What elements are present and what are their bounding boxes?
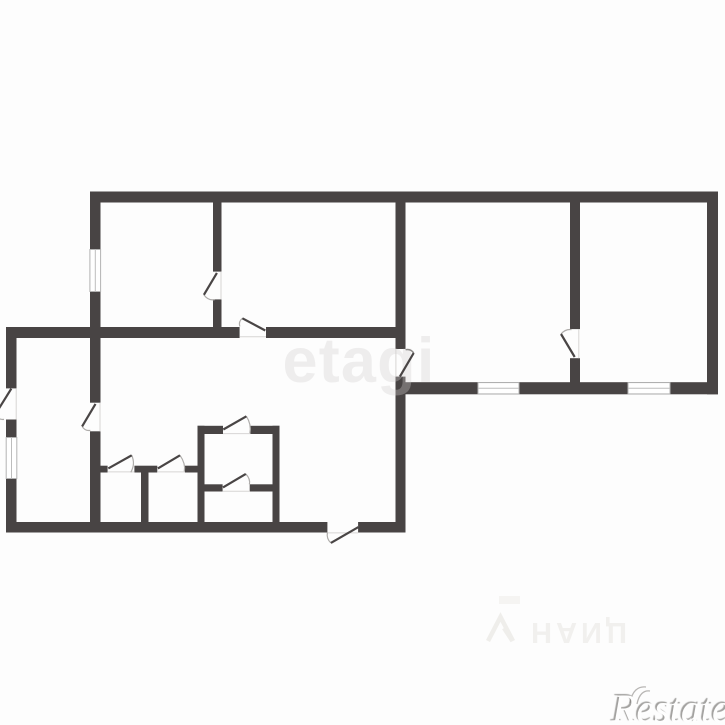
svg-text:etagi: etagi: [283, 326, 436, 396]
